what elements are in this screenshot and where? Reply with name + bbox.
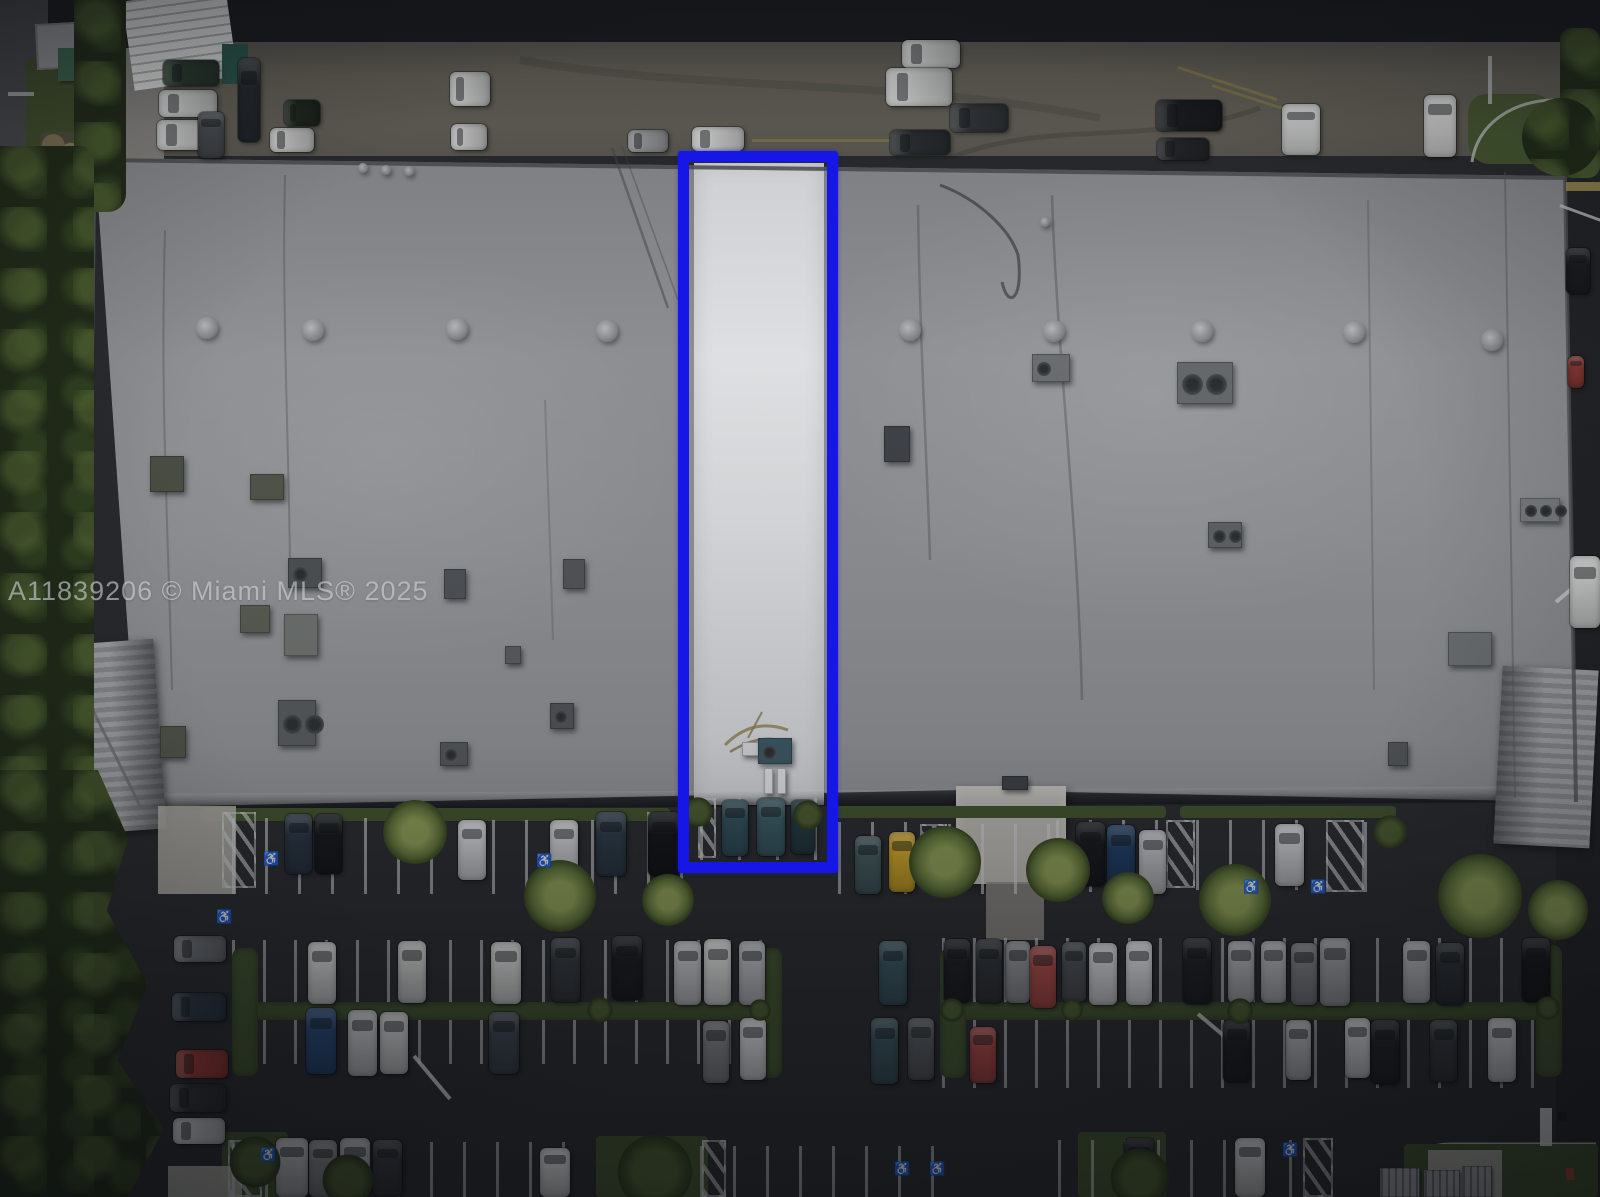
rooftop-hvac-unit: [1448, 632, 1492, 666]
car-windshield: [280, 1147, 304, 1157]
rooftop-hvac-unit: [284, 614, 318, 656]
car-windshield: [1570, 361, 1582, 366]
parking-stall-stripes: [1058, 1140, 1318, 1197]
car: [692, 127, 744, 151]
car: [944, 939, 970, 1003]
car-windshield: [1264, 950, 1283, 961]
car: [1286, 1020, 1311, 1080]
car-windshield: [310, 1018, 332, 1029]
pavement-marking: [1566, 182, 1600, 191]
rooftop-hvac-unit: [150, 456, 184, 492]
car-windshield: [1033, 955, 1052, 966]
car: [1566, 248, 1590, 294]
car: [1424, 95, 1456, 157]
palm-tree: [524, 860, 596, 932]
grass-strip: [836, 806, 1166, 818]
car: [308, 942, 336, 1004]
car: [176, 1050, 228, 1078]
car-windshield: [979, 949, 998, 960]
car: [902, 40, 960, 68]
car: [1157, 138, 1209, 160]
car-windshield: [182, 940, 191, 959]
handicap-stall-symbol: ♿: [216, 910, 232, 923]
car-windshield: [179, 1088, 189, 1108]
no-parking-hatch: [1303, 1138, 1333, 1197]
no-parking-hatch: [702, 1140, 726, 1197]
car-windshield: [493, 1021, 515, 1032]
hvac-fan: [1540, 505, 1552, 517]
handicap-stall-symbol: ♿: [260, 1148, 276, 1161]
car-windshield: [973, 1035, 992, 1045]
shrub: [229, 1136, 281, 1188]
no-parking-hatch: [222, 812, 256, 888]
car: [1345, 1018, 1370, 1078]
roof-vent: [1191, 320, 1213, 342]
car: [276, 1138, 308, 1197]
car-windshield: [313, 1149, 334, 1159]
pavement-marking: [1557, 1112, 1566, 1121]
car: [628, 130, 668, 152]
car: [1183, 938, 1211, 1004]
car: [489, 1012, 519, 1074]
handicap-stall-symbol: ♿: [1310, 880, 1326, 893]
car: [1320, 938, 1350, 1006]
parking-stall-stripes: [942, 1018, 1558, 1088]
car-windshield: [678, 951, 698, 962]
rooftop-hvac-unit: [278, 700, 316, 746]
handicap-stall-symbol: ♿: [929, 1162, 945, 1175]
roof-vent-small: [381, 165, 391, 175]
car-windshield: [1440, 952, 1461, 963]
rooftop-hvac-unit: [444, 569, 466, 599]
shrub: [1373, 815, 1407, 849]
car-windshield: [184, 1054, 193, 1074]
roof-vent-small: [404, 166, 414, 176]
rooftop-hvac-unit: [1177, 362, 1233, 404]
palm-tree: [642, 874, 694, 926]
car-windshield: [290, 104, 296, 123]
pavement-marking: [8, 92, 34, 96]
car: [890, 130, 950, 155]
car-windshield: [900, 134, 911, 152]
car-windshield: [1375, 1030, 1396, 1041]
car-windshield: [1569, 255, 1587, 263]
aerial-listing-photo: ♿♿♿♿♿♿♿♿♿ A11839206 © Miami MLS® 2025: [0, 0, 1600, 1197]
car-windshield: [312, 951, 333, 962]
car-windshield: [911, 44, 921, 64]
car-windshield: [1165, 141, 1174, 157]
rooftop-hvac-unit: [1032, 354, 1070, 382]
hvac-fan: [1525, 505, 1537, 517]
car-windshield: [911, 1027, 930, 1038]
hvac-fan: [555, 711, 567, 723]
landscape-median-cap: [232, 948, 258, 1076]
car-windshield: [319, 823, 339, 833]
car-windshield: [1526, 948, 1547, 959]
rooftop-hvac-unit: [1388, 742, 1408, 766]
hvac-fan: [283, 715, 302, 734]
car: [886, 68, 952, 106]
car-windshield: [1227, 1029, 1247, 1040]
handicap-stall-symbol: ♿: [263, 852, 279, 865]
car: [163, 60, 219, 86]
hvac-fan: [1555, 505, 1567, 517]
handicap-stall-symbol: ♿: [536, 854, 552, 867]
roof-vent: [899, 319, 921, 341]
rooftop-hvac-unit: [1424, 1170, 1460, 1197]
car-windshield: [959, 108, 969, 128]
car: [1156, 100, 1222, 131]
car-windshield: [858, 845, 877, 855]
car: [1223, 1020, 1250, 1082]
rooftop-hvac-unit: [240, 605, 270, 633]
car: [1403, 941, 1430, 1003]
car-windshield: [166, 124, 176, 146]
car: [879, 941, 907, 1005]
car: [238, 58, 260, 142]
hvac-fan: [1206, 374, 1227, 395]
rooftop-hvac-unit: [1002, 776, 1028, 790]
car: [612, 936, 642, 1000]
car-windshield: [1065, 951, 1083, 961]
palm-top-right-verge: [1522, 98, 1600, 176]
car: [451, 124, 487, 150]
car: [674, 941, 701, 1005]
car-windshield: [168, 94, 178, 113]
car-windshield: [462, 829, 483, 839]
car: [398, 941, 426, 1003]
car-windshield: [456, 77, 463, 102]
rooftop-hvac-unit: [884, 426, 910, 462]
pavement-marking: [1566, 1168, 1574, 1180]
car-windshield: [1287, 112, 1315, 121]
car: [1235, 1138, 1265, 1197]
car: [284, 100, 320, 126]
hvac-fan: [1213, 530, 1226, 543]
roof-vent: [302, 319, 324, 341]
car-windshield: [616, 946, 638, 957]
palm-tree: [1199, 864, 1271, 936]
hvac-fan: [1182, 374, 1203, 395]
car: [970, 1027, 996, 1083]
car-windshield: [277, 131, 285, 148]
rooftop-hvac-unit: [1208, 522, 1242, 548]
car: [270, 128, 314, 152]
car-windshield: [1129, 951, 1148, 962]
parking-stall-stripes: [700, 1146, 962, 1197]
car-windshield: [700, 130, 709, 147]
car: [1282, 104, 1320, 155]
handicap-stall-symbol: ♿: [1282, 1143, 1298, 1156]
rooftop-hvac-unit: [250, 474, 284, 500]
right-metal-canopy: [1493, 666, 1598, 849]
palm-tree: [1438, 854, 1522, 938]
car-windshield: [402, 950, 423, 961]
car: [551, 938, 580, 1002]
shrub: [1061, 999, 1083, 1021]
car-windshield: [457, 128, 463, 147]
car-windshield: [1111, 835, 1132, 846]
car: [1228, 941, 1254, 1003]
hvac-fan: [305, 715, 324, 734]
handicap-stall-symbol: ♿: [894, 1162, 910, 1175]
roof-vent-small: [358, 163, 368, 173]
highlighted-unit-outline: [678, 151, 838, 873]
palm-tree: [1102, 872, 1154, 924]
hvac-fan: [445, 749, 457, 761]
car-windshield: [1080, 832, 1101, 843]
car: [1030, 946, 1056, 1008]
car-windshield: [1294, 952, 1313, 963]
trees-left-edge: [0, 146, 94, 818]
car-windshield: [947, 949, 966, 960]
car: [491, 942, 521, 1004]
car: [1522, 938, 1550, 1002]
pavement-marking: [1540, 1108, 1552, 1146]
shrub: [322, 1154, 374, 1197]
car-windshield: [384, 1021, 405, 1032]
roof-vent-small: [1040, 217, 1050, 227]
car: [740, 1018, 766, 1080]
roof-vent: [446, 318, 468, 340]
car-windshield: [1434, 1029, 1454, 1040]
car-windshield: [1289, 1029, 1308, 1039]
car: [198, 112, 224, 158]
car-windshield: [897, 73, 909, 100]
car-windshield: [377, 1149, 398, 1159]
car: [703, 1021, 729, 1083]
car: [1261, 941, 1286, 1003]
pavement-marking: [1488, 56, 1492, 104]
car-windshield: [241, 71, 257, 85]
car-windshield: [743, 1027, 762, 1038]
car-windshield: [181, 1122, 190, 1141]
car-windshield: [1492, 1028, 1513, 1039]
car-windshield: [1187, 948, 1208, 959]
car: [596, 812, 626, 876]
car: [1062, 942, 1086, 1002]
car: [1436, 943, 1464, 1005]
car-windshield: [883, 951, 904, 962]
car: [1570, 556, 1600, 628]
car-windshield: [892, 841, 911, 851]
palm-tree: [909, 826, 981, 898]
car-windshield: [708, 949, 728, 960]
car-windshield: [1428, 104, 1452, 115]
car: [871, 1018, 898, 1084]
car-windshield: [352, 1020, 373, 1031]
car-windshield: [1574, 567, 1596, 579]
car: [1488, 1018, 1516, 1082]
rooftop-hvac-unit: [1462, 1166, 1492, 1197]
car: [170, 1084, 226, 1112]
shrub: [749, 999, 771, 1021]
car: [458, 820, 486, 880]
car: [739, 941, 765, 1005]
car-windshield: [1324, 948, 1346, 960]
roof-vent: [1043, 320, 1065, 342]
handicap-stall-symbol: ♿: [1243, 880, 1259, 893]
car: [976, 939, 1002, 1003]
car: [704, 939, 731, 1005]
car-windshield: [544, 1155, 566, 1163]
shrub: [587, 997, 613, 1023]
car-windshield: [289, 823, 309, 833]
car: [540, 1148, 570, 1197]
car-windshield: [1239, 1147, 1261, 1157]
car: [648, 812, 680, 876]
palm-tree: [1026, 838, 1090, 902]
car: [315, 814, 342, 874]
rooftop-hvac-unit: [1520, 498, 1560, 522]
hvac-fan: [1229, 530, 1242, 543]
rooftop-hvac-unit: [160, 726, 186, 758]
car: [306, 1008, 336, 1074]
car-windshield: [1143, 840, 1163, 851]
car-windshield: [1279, 833, 1300, 844]
car: [380, 1012, 408, 1074]
shrub: [1227, 998, 1253, 1024]
car-windshield: [634, 133, 641, 149]
car-windshield: [1093, 952, 1114, 963]
car-windshield: [706, 1030, 725, 1041]
car: [1126, 941, 1152, 1005]
roof-vent: [196, 317, 218, 339]
car-windshield: [1231, 950, 1250, 961]
car: [1291, 943, 1317, 1005]
car: [1089, 943, 1117, 1005]
car-windshield: [554, 829, 575, 839]
car: [1568, 356, 1584, 388]
palm-tree: [383, 800, 447, 864]
rooftop-hvac-unit: [440, 742, 468, 766]
rooftop-hvac-unit: [563, 559, 585, 589]
car: [1371, 1020, 1399, 1084]
roof-vent: [596, 320, 618, 342]
car: [1275, 824, 1304, 886]
car-windshield: [181, 997, 191, 1017]
car-windshield: [652, 822, 676, 833]
car: [908, 1018, 934, 1080]
car-windshield: [201, 119, 220, 127]
car: [173, 1118, 225, 1144]
shrub: [940, 998, 964, 1022]
car: [1430, 1020, 1457, 1082]
rooftop-hvac-unit: [550, 703, 574, 729]
roof-vent: [1343, 321, 1365, 343]
roof-vent: [1481, 329, 1503, 351]
shrub: [1536, 996, 1560, 1020]
car-windshield: [1348, 1027, 1367, 1037]
mls-watermark: A11839206 © Miami MLS® 2025: [8, 576, 429, 607]
car-windshield: [875, 1028, 895, 1039]
car: [450, 72, 490, 106]
car-windshield: [172, 64, 182, 83]
no-parking-hatch: [1166, 820, 1195, 888]
hvac-fan: [1037, 362, 1051, 376]
car-windshield: [1167, 104, 1179, 126]
rooftop-hvac-unit: [505, 646, 521, 664]
car-windshield: [742, 951, 761, 962]
rooftop-hvac-unit: [1380, 1168, 1420, 1197]
palm-tree: [1528, 880, 1588, 940]
car-windshield: [495, 951, 517, 962]
car: [373, 1140, 402, 1197]
car: [285, 814, 312, 874]
trees-bottom-left: [0, 770, 178, 1197]
car: [1006, 941, 1030, 1003]
car: [172, 993, 226, 1021]
car-windshield: [555, 948, 576, 959]
car: [855, 836, 881, 894]
car: [174, 936, 226, 962]
car-windshield: [600, 822, 622, 833]
car: [950, 104, 1008, 132]
grass-strip: [1180, 806, 1396, 818]
car-windshield: [1407, 950, 1427, 961]
car: [348, 1010, 377, 1076]
car-windshield: [1009, 950, 1027, 961]
no-parking-hatch: [1326, 820, 1364, 892]
